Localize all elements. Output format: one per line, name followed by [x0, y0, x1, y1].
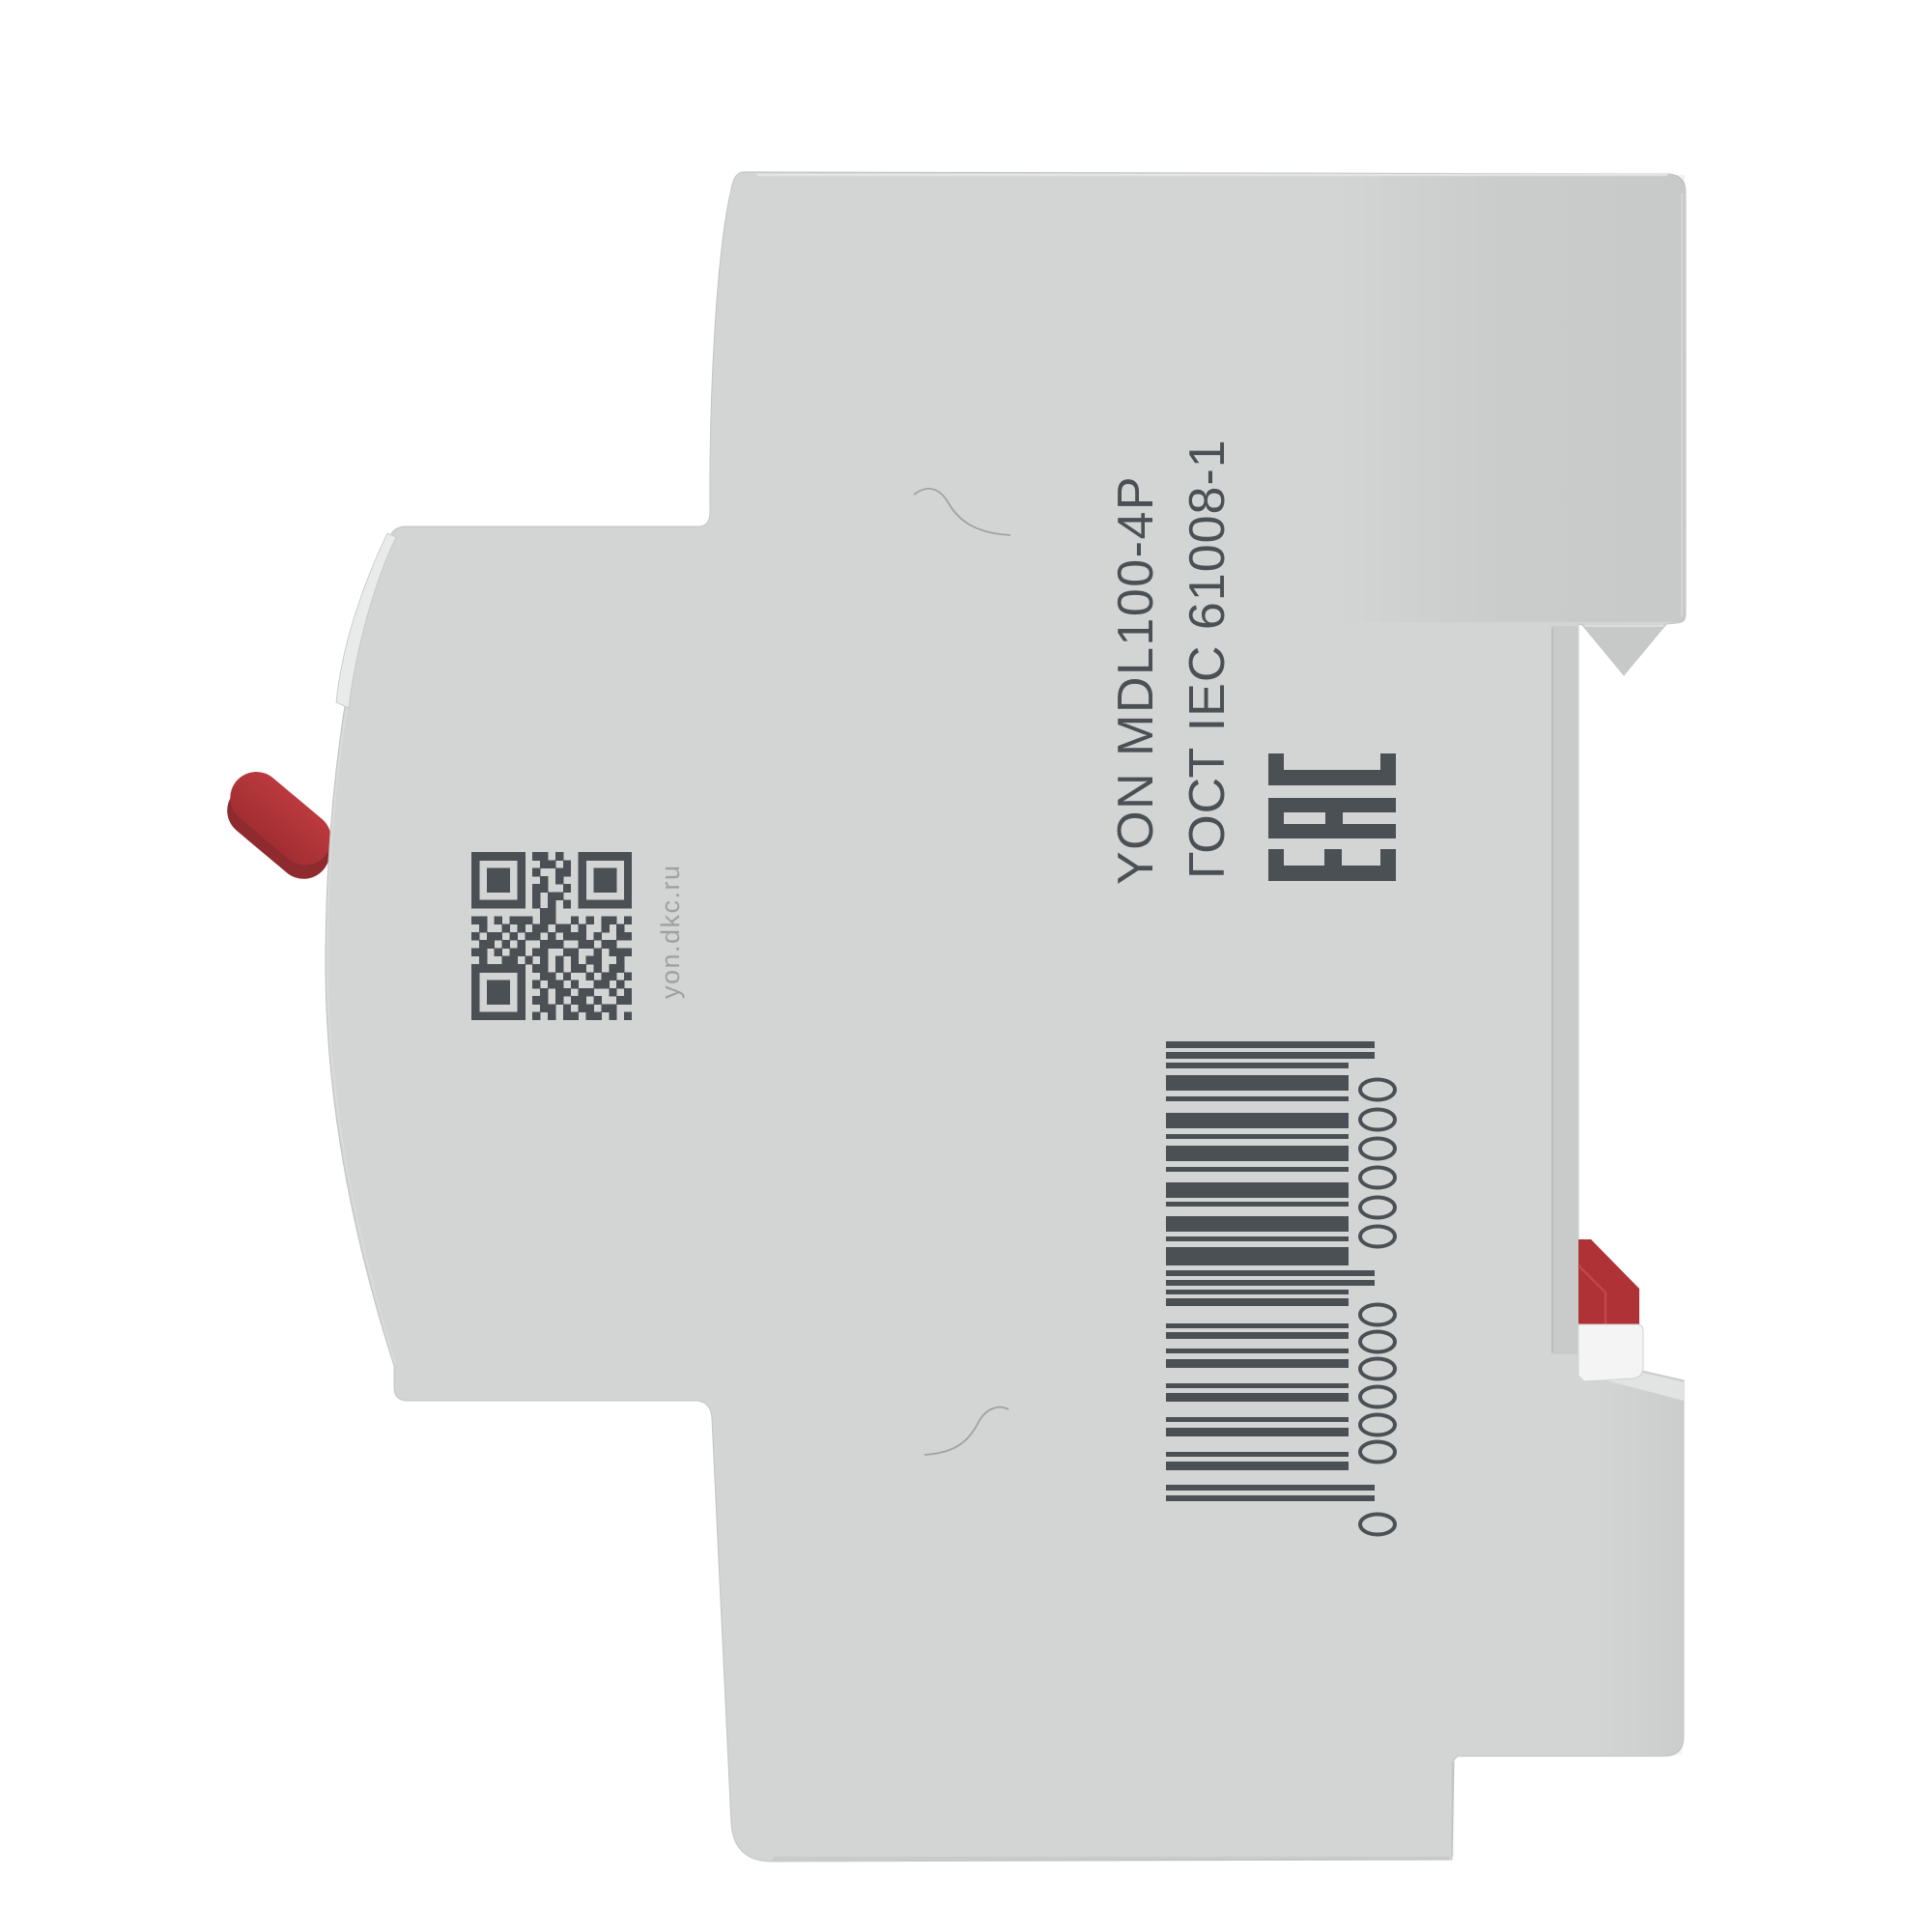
- din-clip-white: [1578, 1324, 1643, 1381]
- barcode: [1166, 1034, 1398, 1546]
- side-face-shade: [1333, 175, 1685, 622]
- eac-letter-e: [1268, 849, 1396, 881]
- eac-logo: [1268, 753, 1398, 883]
- toggle-lever: [213, 761, 348, 890]
- qr-code-pattern: [471, 852, 632, 1020]
- standard-label: ГОСТ IEC 61008-1: [1182, 439, 1233, 879]
- din-latch-red-tab: [1578, 1239, 1639, 1324]
- qr-code: [471, 852, 632, 1020]
- eac-letter-c: [1268, 753, 1396, 785]
- rail-channel-shade: [1551, 626, 1577, 1354]
- bottom-block-shade: [1594, 1385, 1683, 1755]
- eac-letter-a: [1268, 798, 1396, 838]
- website-label: yon.dkc.ru: [658, 864, 684, 999]
- rail-hook: [1582, 625, 1665, 674]
- product-photo: yon.dkc.ru YON MDL100-4P ГОСТ IEC 61008-…: [0, 0, 1932, 1932]
- device-illustration: [0, 0, 1932, 1932]
- model-label: YON MDL100-4P: [1111, 475, 1161, 885]
